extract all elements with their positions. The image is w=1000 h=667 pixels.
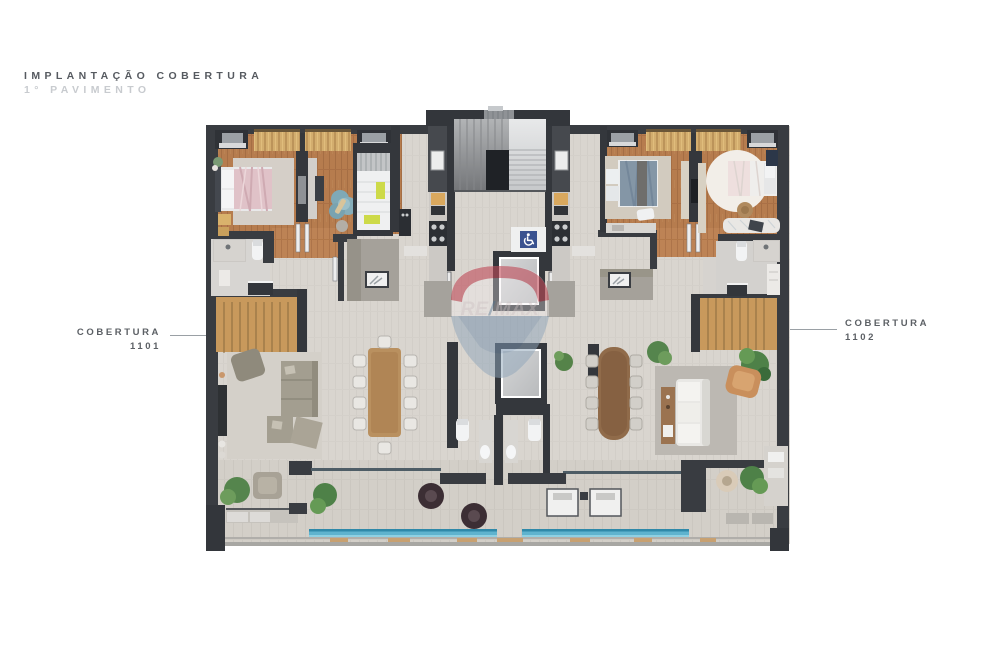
svg-text:RE/MAX: RE/MAX — [461, 298, 540, 320]
svg-text:COBERTURA: COBERTURA — [845, 318, 929, 329]
svg-text:1102: 1102 — [845, 332, 876, 343]
svg-text:IMPLANTAÇÃO COBERTURA: IMPLANTAÇÃO COBERTURA — [24, 69, 263, 82]
svg-text:COBERTURA: COBERTURA — [77, 327, 161, 338]
svg-text:1° PAVIMENTO: 1° PAVIMENTO — [24, 84, 150, 96]
svg-text:1101: 1101 — [130, 341, 161, 352]
